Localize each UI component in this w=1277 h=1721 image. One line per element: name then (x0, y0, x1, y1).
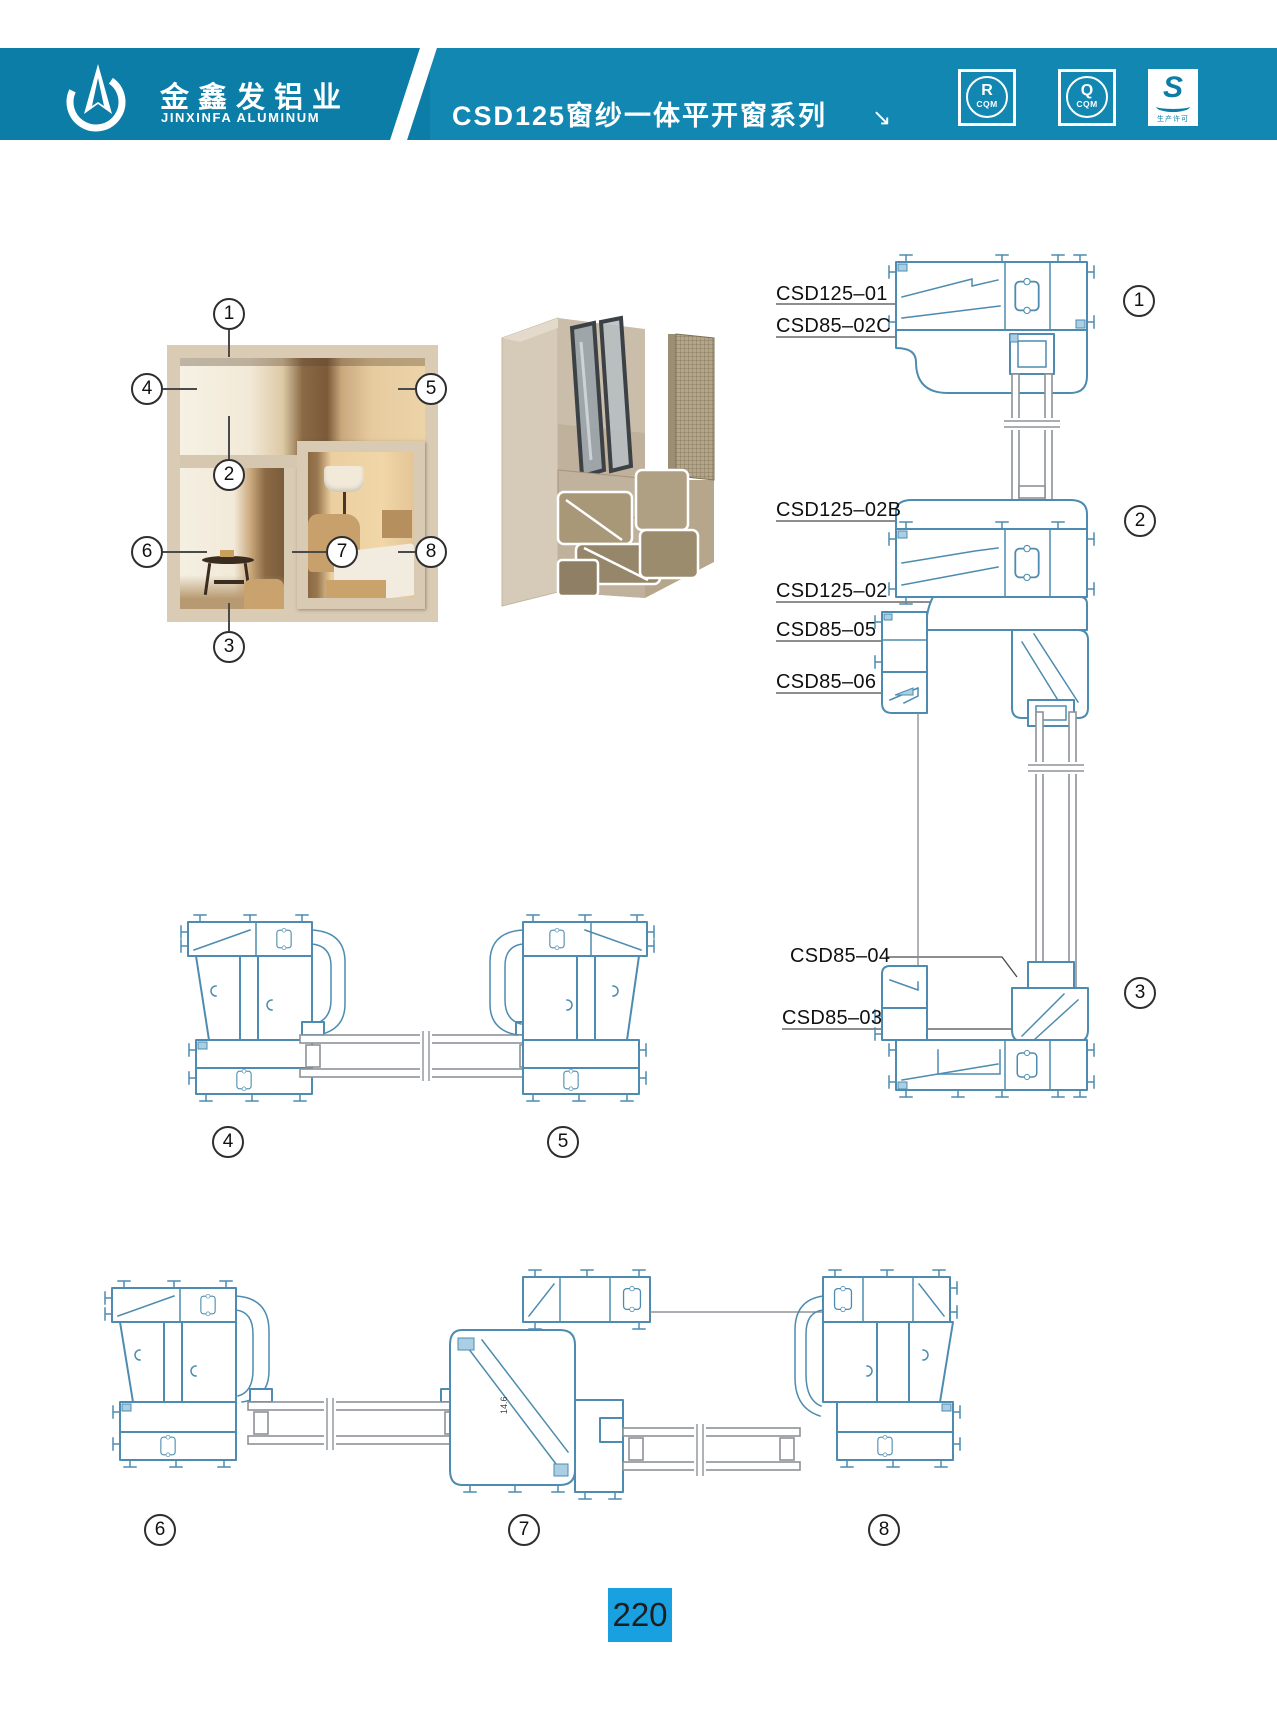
callout-line-6 (163, 551, 207, 553)
callout-line-7 (292, 551, 326, 553)
table-item (220, 550, 234, 557)
part-label-csd85-06: CSD85–06 (776, 671, 876, 694)
casement-sash-frame (297, 441, 425, 609)
horizontal-section-top-drawing (181, 915, 654, 1101)
photo-callout-5: 5 (415, 373, 447, 405)
part-label-csd85-04: CSD85–04 (790, 945, 890, 968)
horizontal-section-bottom-drawing (105, 1270, 960, 1499)
detail-marker-4: 4 (212, 1126, 244, 1158)
photo-callout-8: 8 (415, 536, 447, 568)
photo-callout-3: 3 (213, 631, 245, 663)
callout-line-4 (163, 388, 197, 390)
detail-marker-1: 1 (1123, 285, 1155, 317)
photo-callout-6: 6 (131, 536, 163, 568)
detail-marker-8: 8 (868, 1514, 900, 1546)
catalog-page: 金鑫发铝业 JINXINFA ALUMINUM CSD125窗纱一体平开窗系列 … (0, 0, 1277, 1721)
part-label-csd85-03: CSD85–03 (782, 1007, 882, 1030)
profile-3d-render (502, 318, 714, 606)
dimension-note: 14.6 (499, 1396, 509, 1414)
part-label-csd125-02: CSD125–02 (776, 580, 888, 603)
sofa-corner (244, 579, 284, 609)
technical-line-art (0, 0, 1277, 1721)
part-label-csd85-02c: CSD85–02C (776, 315, 891, 338)
page-number: 220 (608, 1588, 672, 1642)
bed-bench (326, 580, 386, 598)
photo-callout-1: 1 (213, 298, 245, 330)
detail-marker-6: 6 (144, 1514, 176, 1546)
detail-marker-7: 7 (508, 1514, 540, 1546)
callout-line-5 (398, 388, 415, 390)
window-photo (167, 345, 438, 622)
photo-callout-7: 7 (326, 536, 358, 568)
part-label-csd125-01: CSD125–01 (776, 283, 888, 306)
callout-line-8 (398, 551, 415, 553)
callout-line-3 (228, 603, 230, 631)
photo-callout-4: 4 (131, 373, 163, 405)
photo-callout-2: 2 (213, 459, 245, 491)
callout-line-1 (228, 330, 230, 357)
detail-marker-3: 3 (1124, 977, 1156, 1009)
detail-marker-2: 2 (1124, 505, 1156, 537)
casement-glass (308, 452, 414, 598)
detail-marker-5: 5 (547, 1126, 579, 1158)
nightstand (382, 510, 412, 538)
table-shelf (214, 580, 244, 584)
callout-line-2 (228, 416, 230, 459)
part-label-csd85-05: CSD85–05 (776, 619, 876, 642)
lamp-shade (324, 466, 364, 492)
ceiling-shadow (180, 358, 425, 366)
part-label-csd125-02b: CSD125–02B (776, 499, 901, 522)
